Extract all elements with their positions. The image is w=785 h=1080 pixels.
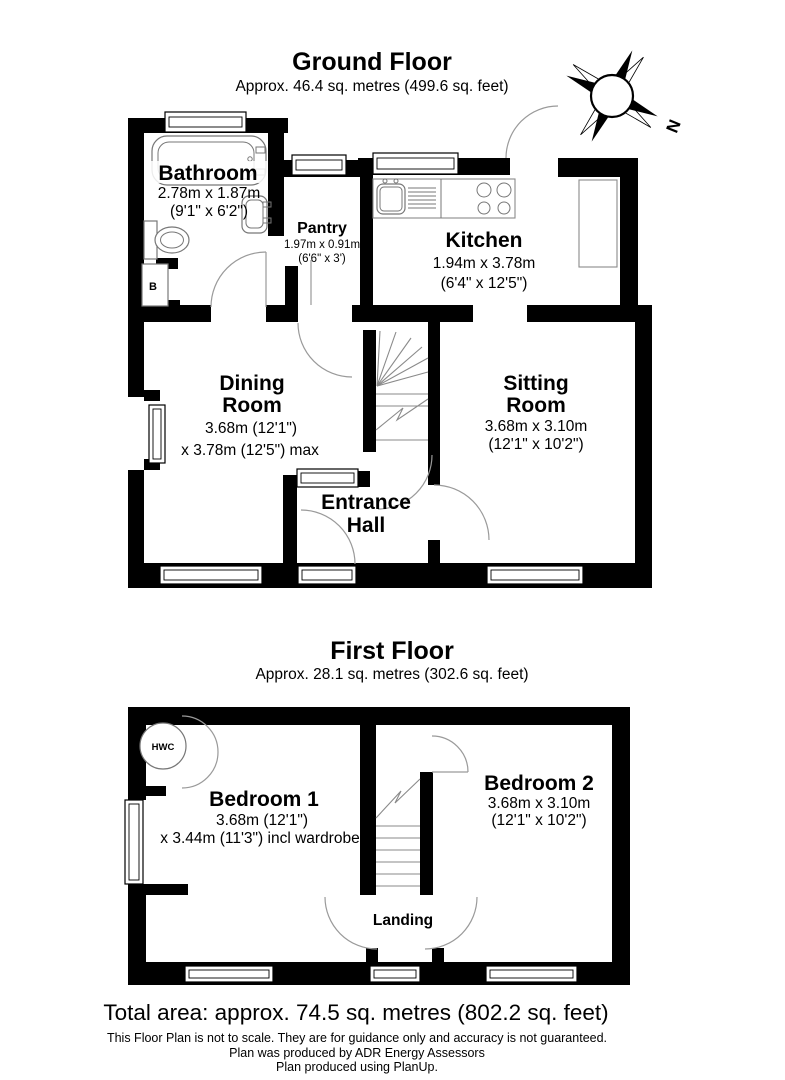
footer: Total area: approx. 74.5 sq. metres (802… (103, 1000, 608, 1074)
compass: N (531, 15, 693, 177)
pantry-dims-imperial: (6'6" x 3') (298, 253, 346, 265)
sitting-room-label-line2: Room (506, 394, 566, 417)
compass-north-label: N (662, 117, 684, 136)
hwc-door-arc-bottom (182, 752, 218, 788)
stair-break-line (376, 399, 428, 430)
disclaimer-line1: This Floor Plan is not to scale. They ar… (107, 1031, 607, 1045)
disclaimer-line2: Plan was produced by ADR Energy Assessor… (229, 1046, 485, 1060)
floorplan-page: Ground Floor Approx. 46.4 sq. metres (49… (0, 0, 785, 1080)
bedroom2-window (486, 966, 577, 982)
pantry-dims-metric: 1.97m x 0.91m (284, 239, 360, 251)
wall (358, 471, 370, 487)
bathroom-dims-metric: 2.78m x 1.87m (158, 185, 261, 202)
kitchen-dims-metric: 1.94m x 3.78m (433, 255, 536, 272)
kitchen-side-counter (579, 180, 617, 267)
first-floor-section: First Floor Approx. 28.1 sq. metres (302… (125, 637, 630, 985)
bedroom1-side-window (125, 800, 143, 884)
stair-winders (377, 331, 428, 386)
wall-stub (366, 948, 378, 962)
sitting-window (487, 566, 583, 584)
stair-wall (420, 772, 433, 895)
boiler-label: B (149, 281, 157, 293)
bedroom1-window (185, 966, 273, 982)
hall-dining-door-arc (298, 323, 352, 377)
toilet (144, 221, 189, 259)
sitting-room-label-line1: Sitting (503, 372, 568, 395)
ground-floor-section: Ground Floor Approx. 46.4 sq. metres (49… (128, 15, 693, 588)
total-area: Total area: approx. 74.5 sq. metres (802… (103, 1000, 608, 1025)
bathroom-label: Bathroom (158, 162, 257, 185)
hwc-cylinder: HWC (140, 723, 186, 769)
sitting-room-dims-imperial: (12'1" x 10'2") (488, 436, 583, 453)
wall (360, 707, 376, 895)
compass-circle (591, 75, 633, 117)
wall (428, 540, 440, 563)
landing-label: Landing (373, 912, 433, 929)
wall (128, 118, 144, 397)
wall (635, 305, 652, 588)
bedroom2-label: Bedroom 2 (484, 772, 594, 795)
bedroom1-dims-imperial: x 3.44m (11'3") incl wardrobe (160, 830, 359, 847)
wall (620, 158, 638, 308)
bathroom-door-arc (211, 252, 266, 307)
dining-room-label-line2: Room (222, 394, 282, 417)
first-floor-stairs (376, 779, 420, 886)
pantry-label: Pantry (297, 220, 347, 237)
sitting-room-dims-metric: 3.68m x 3.10m (485, 418, 588, 435)
kitchen-dims-imperial: (6'4" x 12'5") (441, 275, 528, 292)
stair-treads (376, 826, 420, 886)
first-floor-area: Approx. 28.1 sq. metres (302.6 sq. feet) (255, 666, 528, 683)
ground-floor-title: Ground Floor (292, 48, 452, 76)
disclaimer-line3: Plan produced using PlanUp. (276, 1060, 438, 1074)
wall (266, 305, 298, 322)
wall (612, 707, 630, 985)
wall (283, 475, 297, 563)
kitchen-window (373, 153, 458, 174)
wall-stub (144, 390, 160, 401)
stair-wall (428, 322, 440, 452)
stair-break-line (376, 779, 420, 818)
sitting-room-door-arc (434, 485, 489, 540)
entrance-hall-label-line2: Hall (347, 514, 386, 537)
wall (352, 305, 473, 322)
kitchen-exterior-door-arc (506, 106, 558, 158)
bedroom2-door-arc (432, 736, 468, 772)
dining-side-window (149, 405, 165, 463)
dining-room-label-line1: Dining (219, 372, 284, 395)
dining-room-dims-imperial: x 3.78m (12'5") max (181, 442, 319, 459)
ground-floor-stairs (376, 331, 428, 440)
pantry-window (292, 155, 346, 175)
entrance-hall-label-line1: Entrance (321, 491, 411, 514)
first-floor-title: First Floor (330, 637, 454, 665)
hwc-label: HWC (152, 742, 175, 753)
boiler-cupboard: B (142, 264, 168, 306)
landing-door-arc-left (325, 897, 377, 949)
dining-room-dims-metric: 3.68m (12'1") (205, 420, 297, 437)
front-door-frame (298, 566, 356, 584)
wall-stub (285, 266, 298, 307)
dining-window (160, 566, 262, 584)
bathroom-dims-imperial: (9'1" x 6'2") (170, 203, 248, 220)
landing-window (370, 966, 420, 982)
bedroom2-dims-imperial: (12'1" x 10'2") (491, 812, 586, 829)
wall (360, 175, 373, 305)
stair-wall (363, 330, 376, 452)
wardrobe-stub (146, 884, 188, 895)
ground-floor-area: Approx. 46.4 sq. metres (499.6 sq. feet) (235, 78, 508, 95)
bedroom1-dims-metric: 3.68m (12'1") (216, 812, 308, 829)
wall (527, 305, 635, 322)
floorplan-canvas: Ground Floor Approx. 46.4 sq. metres (49… (0, 0, 785, 1080)
wall-stub (432, 948, 444, 962)
bathroom-window (165, 112, 246, 132)
bedroom2-dims-metric: 3.68m x 3.10m (488, 795, 591, 812)
kitchen-fixtures (373, 179, 617, 267)
entrance-hatch-window (297, 469, 358, 487)
kitchen-label: Kitchen (445, 229, 522, 252)
hwc-closet-wall (146, 786, 166, 796)
bedroom1-label: Bedroom 1 (209, 788, 319, 811)
